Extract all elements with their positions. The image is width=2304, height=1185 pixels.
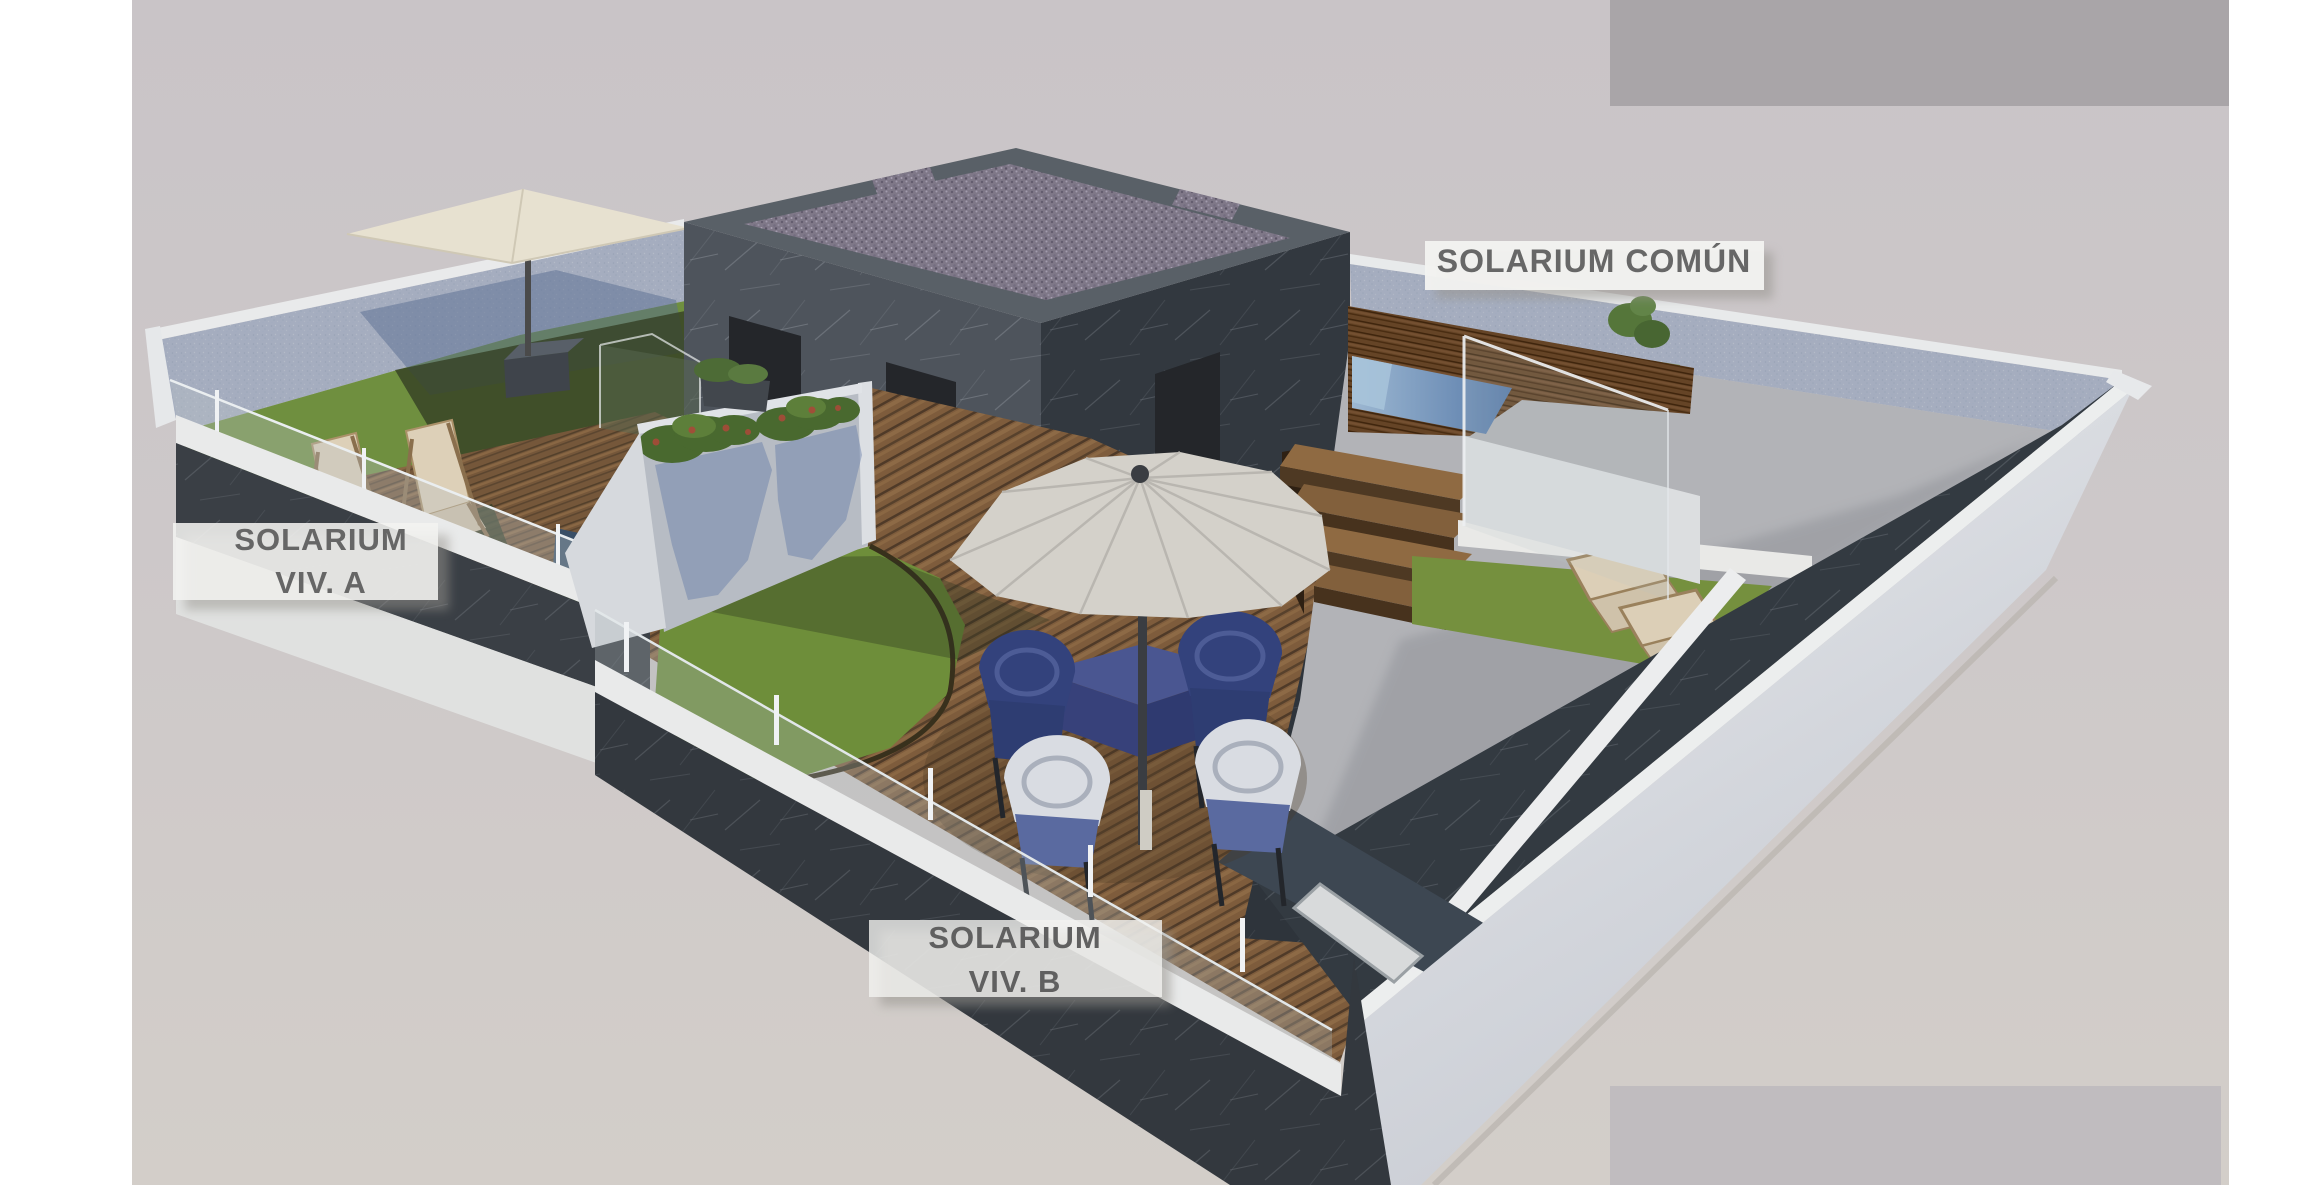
svg-text:SOLARIUM: SOLARIUM <box>928 920 1101 955</box>
svg-text:SOLARIUM COMÚN: SOLARIUM COMÚN <box>1437 243 1751 279</box>
svg-text:SOLARIUM: SOLARIUM <box>234 522 407 557</box>
svg-text:VIV. B: VIV. B <box>969 964 1062 999</box>
svg-text:VIV. A: VIV. A <box>275 565 367 600</box>
